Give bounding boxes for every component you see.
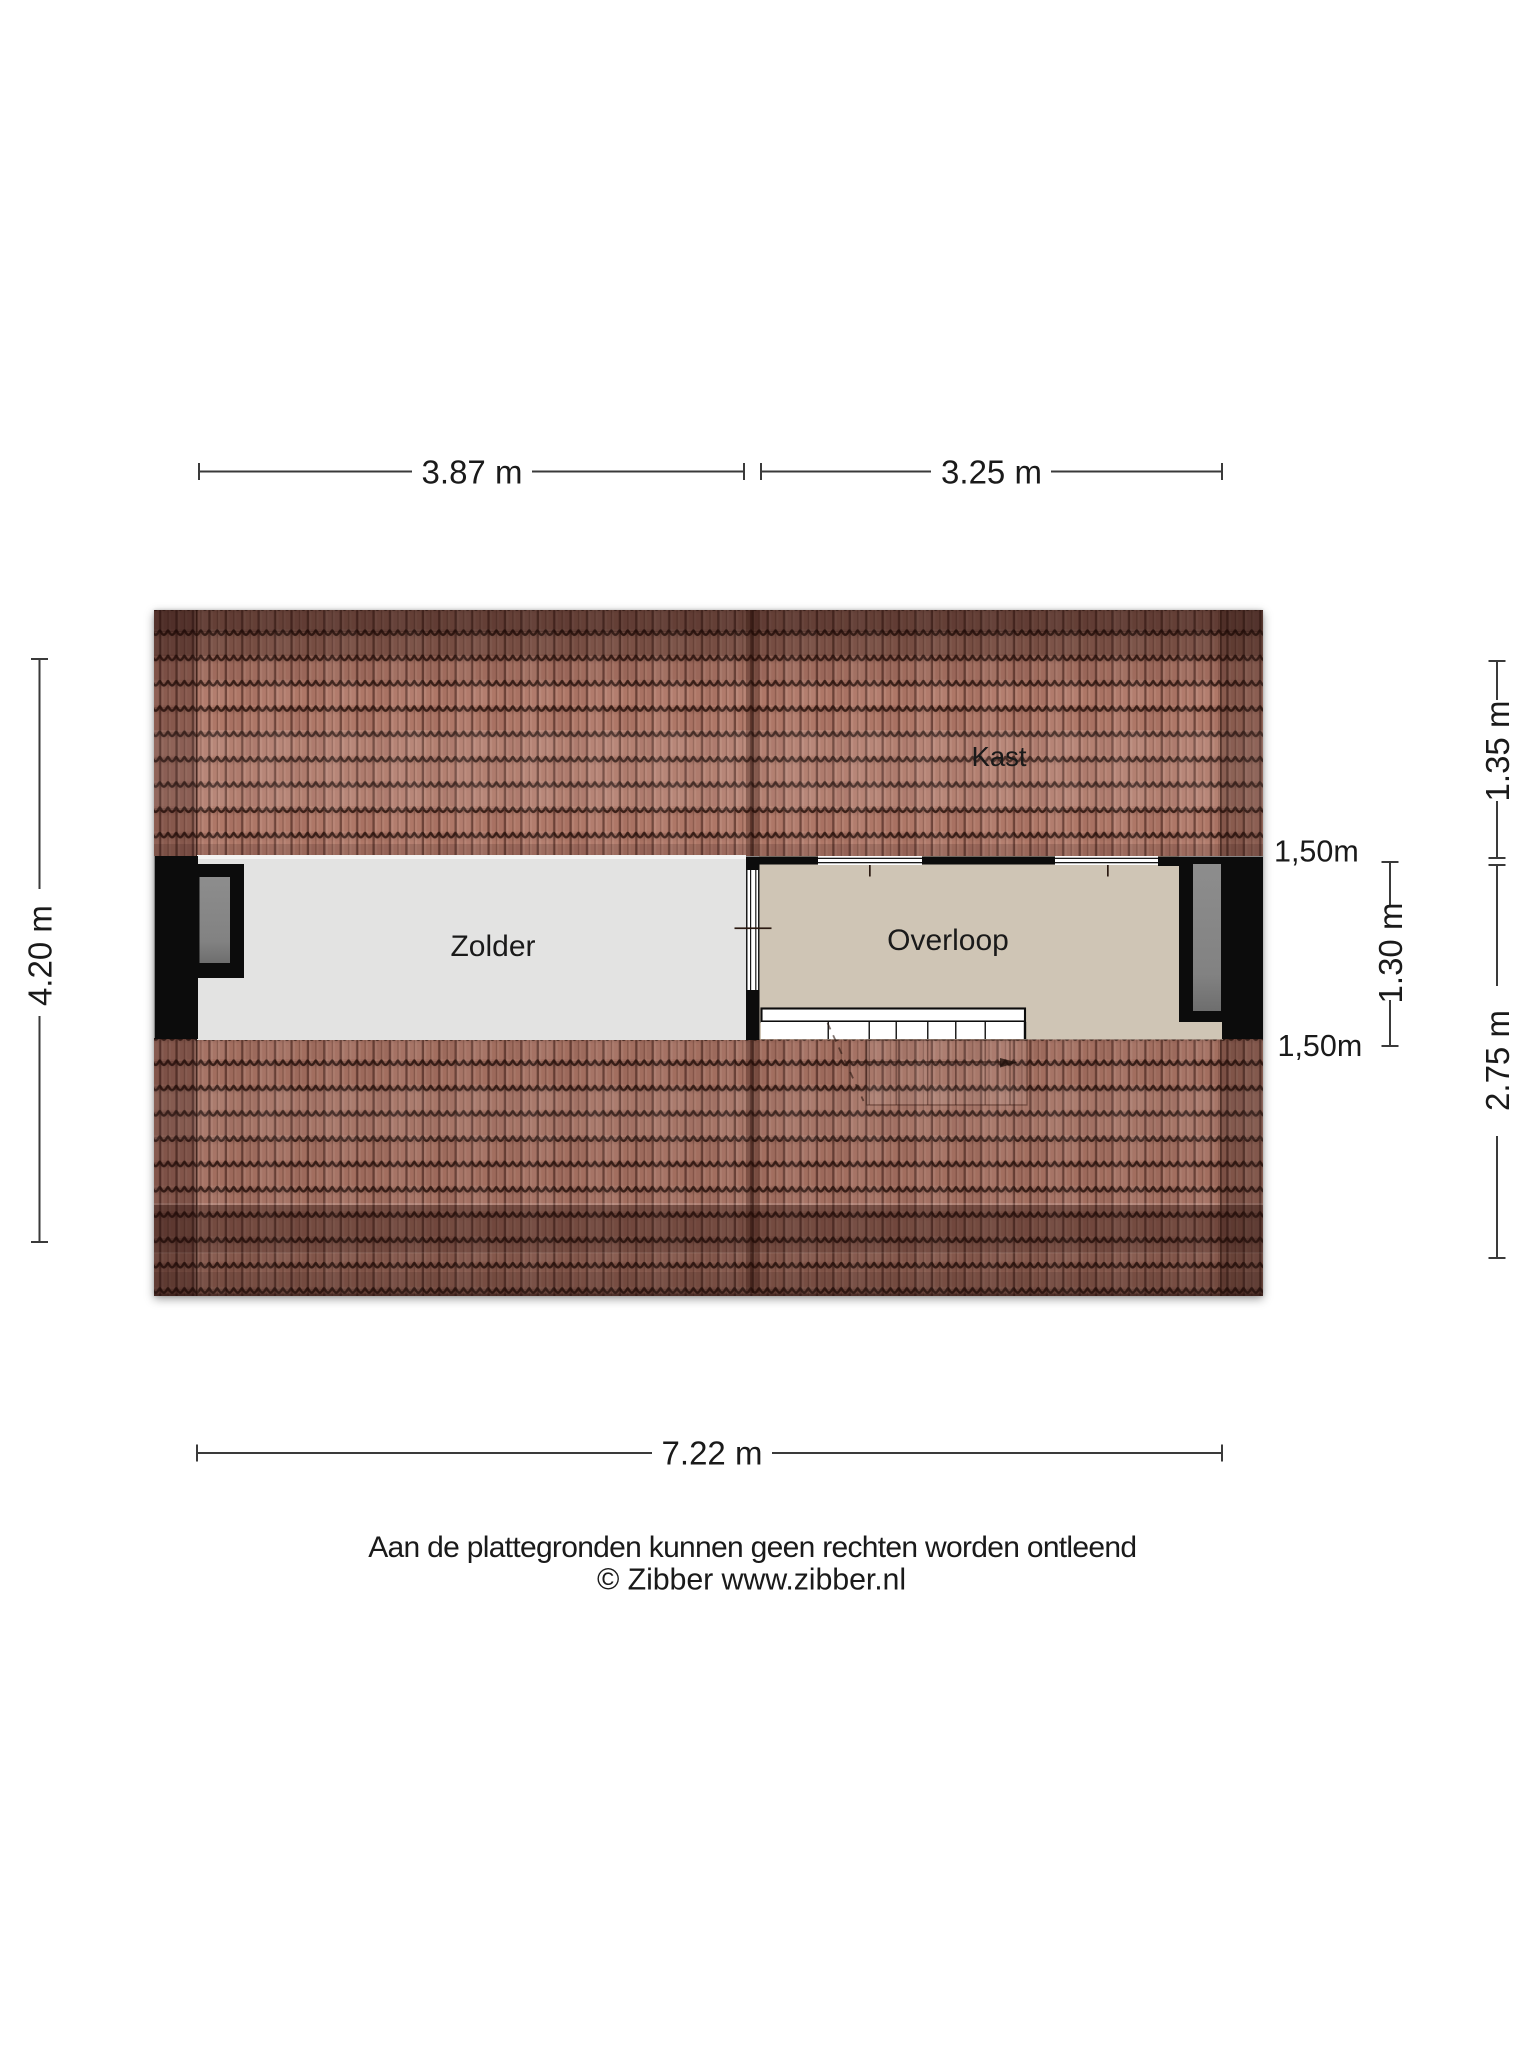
svg-text:1.30 m: 1.30 m — [1372, 903, 1409, 1004]
svg-text:1,50m: 1,50m — [1274, 835, 1359, 869]
svg-text:4.20 m: 4.20 m — [22, 905, 59, 1006]
svg-text:Overloop: Overloop — [887, 924, 1009, 957]
svg-text:2.75 m: 2.75 m — [1479, 1010, 1516, 1111]
svg-text:1.35 m: 1.35 m — [1479, 701, 1516, 802]
svg-text:7.22 m: 7.22 m — [662, 1435, 763, 1472]
svg-text:1,50m: 1,50m — [1278, 1029, 1363, 1063]
svg-text:3.87 m: 3.87 m — [422, 454, 523, 491]
svg-text:Kast: Kast — [971, 741, 1026, 772]
svg-text:3.25 m: 3.25 m — [941, 454, 1042, 491]
svg-text:Zolder: Zolder — [450, 930, 535, 963]
svg-text:Aan de plattegronden kunnen ge: Aan de plattegronden kunnen geen rechten… — [368, 1531, 1136, 1564]
svg-text:© Zibber www.zibber.nl: © Zibber www.zibber.nl — [597, 1563, 906, 1597]
